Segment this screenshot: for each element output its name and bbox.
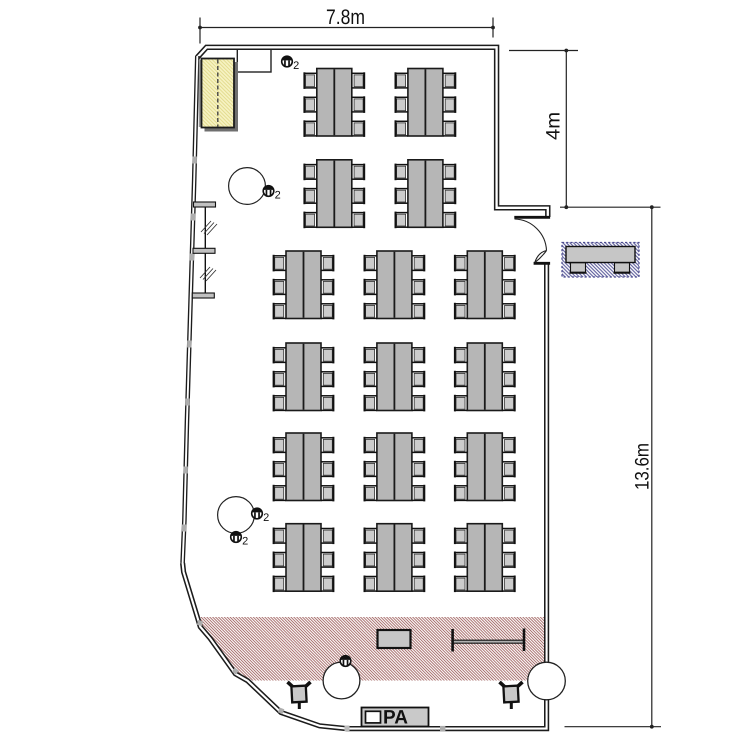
- svg-text:2: 2: [293, 60, 299, 72]
- svg-text:4m: 4m: [543, 112, 565, 140]
- svg-text:2: 2: [275, 189, 281, 201]
- svg-text:7.8m: 7.8m: [326, 6, 365, 29]
- svg-text:13.6m: 13.6m: [632, 443, 654, 490]
- svg-text:2: 2: [263, 512, 269, 524]
- svg-text:PA: PA: [383, 707, 408, 729]
- svg-text:2: 2: [242, 535, 248, 547]
